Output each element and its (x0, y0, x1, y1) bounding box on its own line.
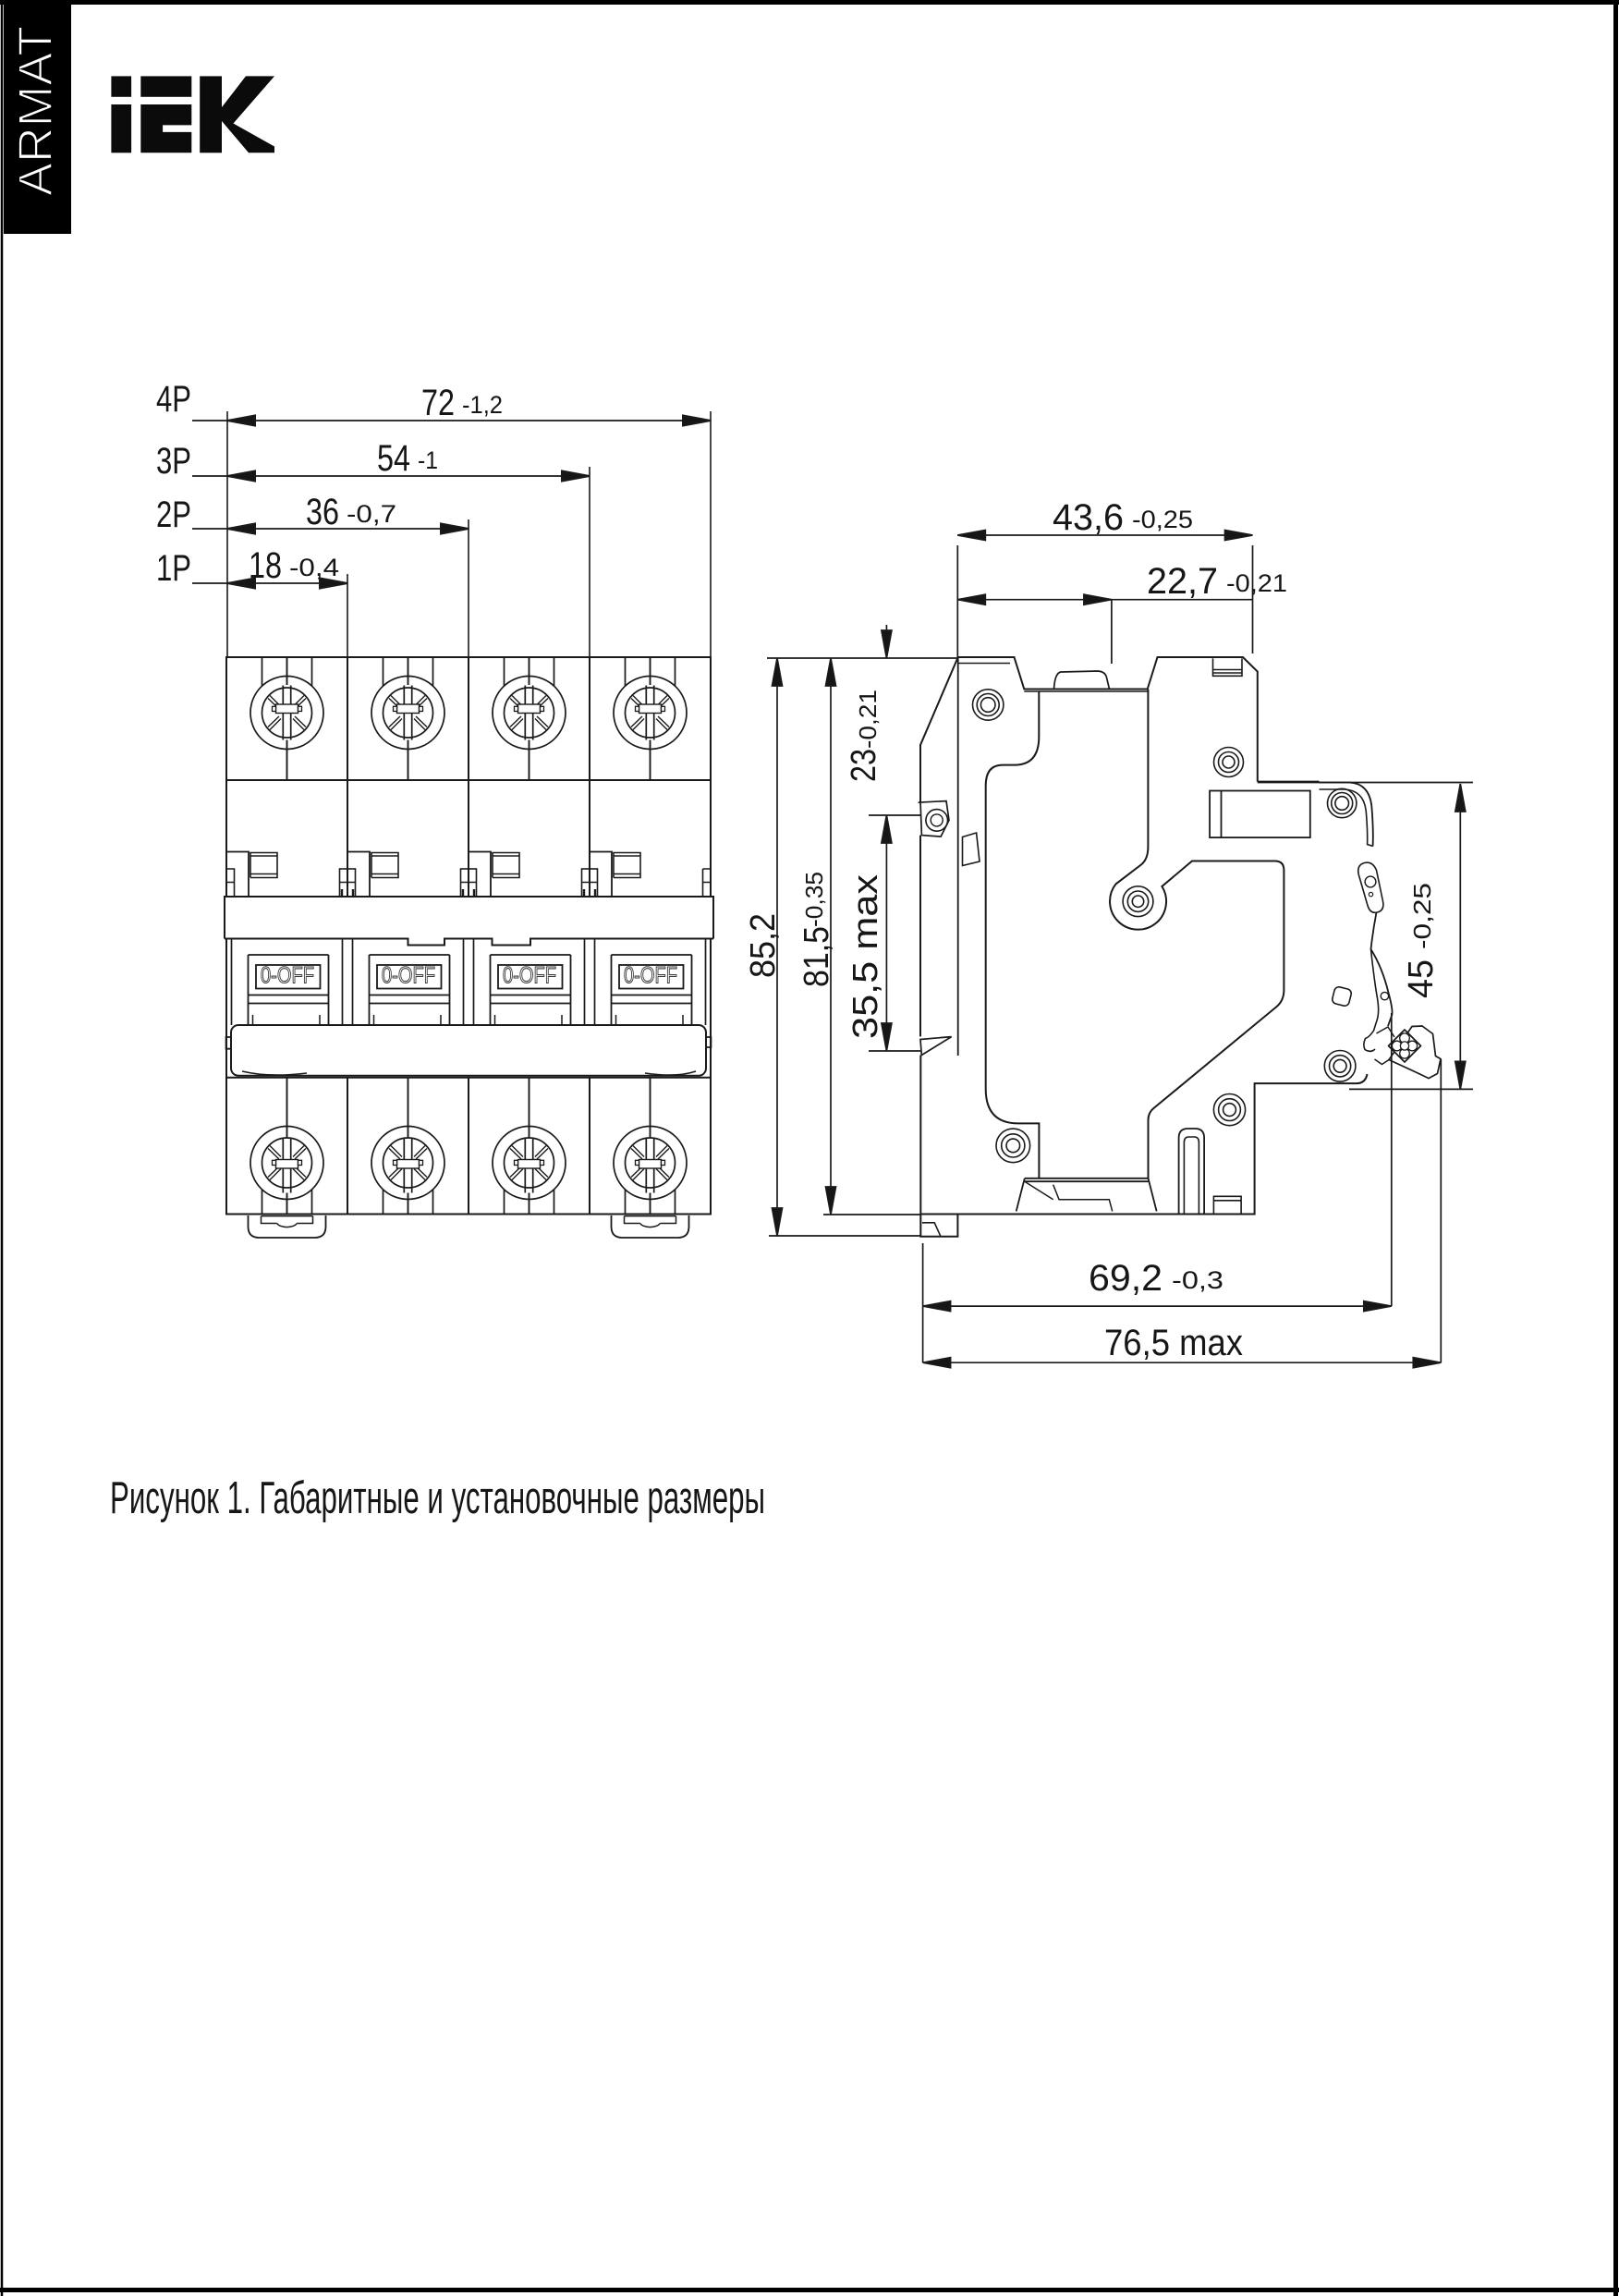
svg-text:-0,7: -0,7 (347, 500, 396, 528)
svg-text:18: 18 (249, 545, 282, 586)
svg-text:36: 36 (306, 492, 339, 532)
svg-text:23: 23 (845, 749, 883, 782)
svg-text:54: 54 (377, 438, 410, 479)
svg-text:-0,25: -0,25 (1408, 883, 1436, 949)
svg-text:3P: 3P (156, 441, 191, 482)
svg-text:-0,3: -0,3 (1172, 1266, 1223, 1294)
svg-text:1P: 1P (156, 548, 191, 589)
svg-text:2P: 2P (156, 495, 191, 535)
svg-text:35,5 max: 35,5 max (846, 874, 885, 1039)
svg-text:-0,21: -0,21 (1226, 569, 1287, 597)
svg-text:22,7: 22,7 (1147, 561, 1218, 602)
svg-text:45: 45 (1402, 959, 1441, 998)
svg-text:72: 72 (421, 383, 455, 423)
svg-text:-0,25: -0,25 (1132, 506, 1193, 533)
svg-text:69,2: 69,2 (1089, 1258, 1163, 1299)
svg-text:Рисунок 1. Габаритные и устано: Рисунок 1. Габаритные и установочные раз… (110, 1473, 765, 1523)
svg-text:81,5: 81,5 (797, 926, 836, 987)
svg-text:ARMAT: ARMAT (9, 26, 63, 196)
svg-text:-0,21: -0,21 (854, 690, 882, 749)
svg-text:85,2: 85,2 (744, 913, 783, 978)
svg-text:-0,4: -0,4 (289, 554, 339, 581)
svg-text:43,6: 43,6 (1053, 497, 1124, 538)
svg-text:-1,2: -1,2 (462, 391, 503, 419)
svg-text:-1: -1 (418, 446, 438, 474)
svg-text:-0,35: -0,35 (800, 872, 828, 927)
svg-text:4P: 4P (156, 379, 191, 420)
svg-text:76,5 max: 76,5 max (1104, 1323, 1243, 1363)
